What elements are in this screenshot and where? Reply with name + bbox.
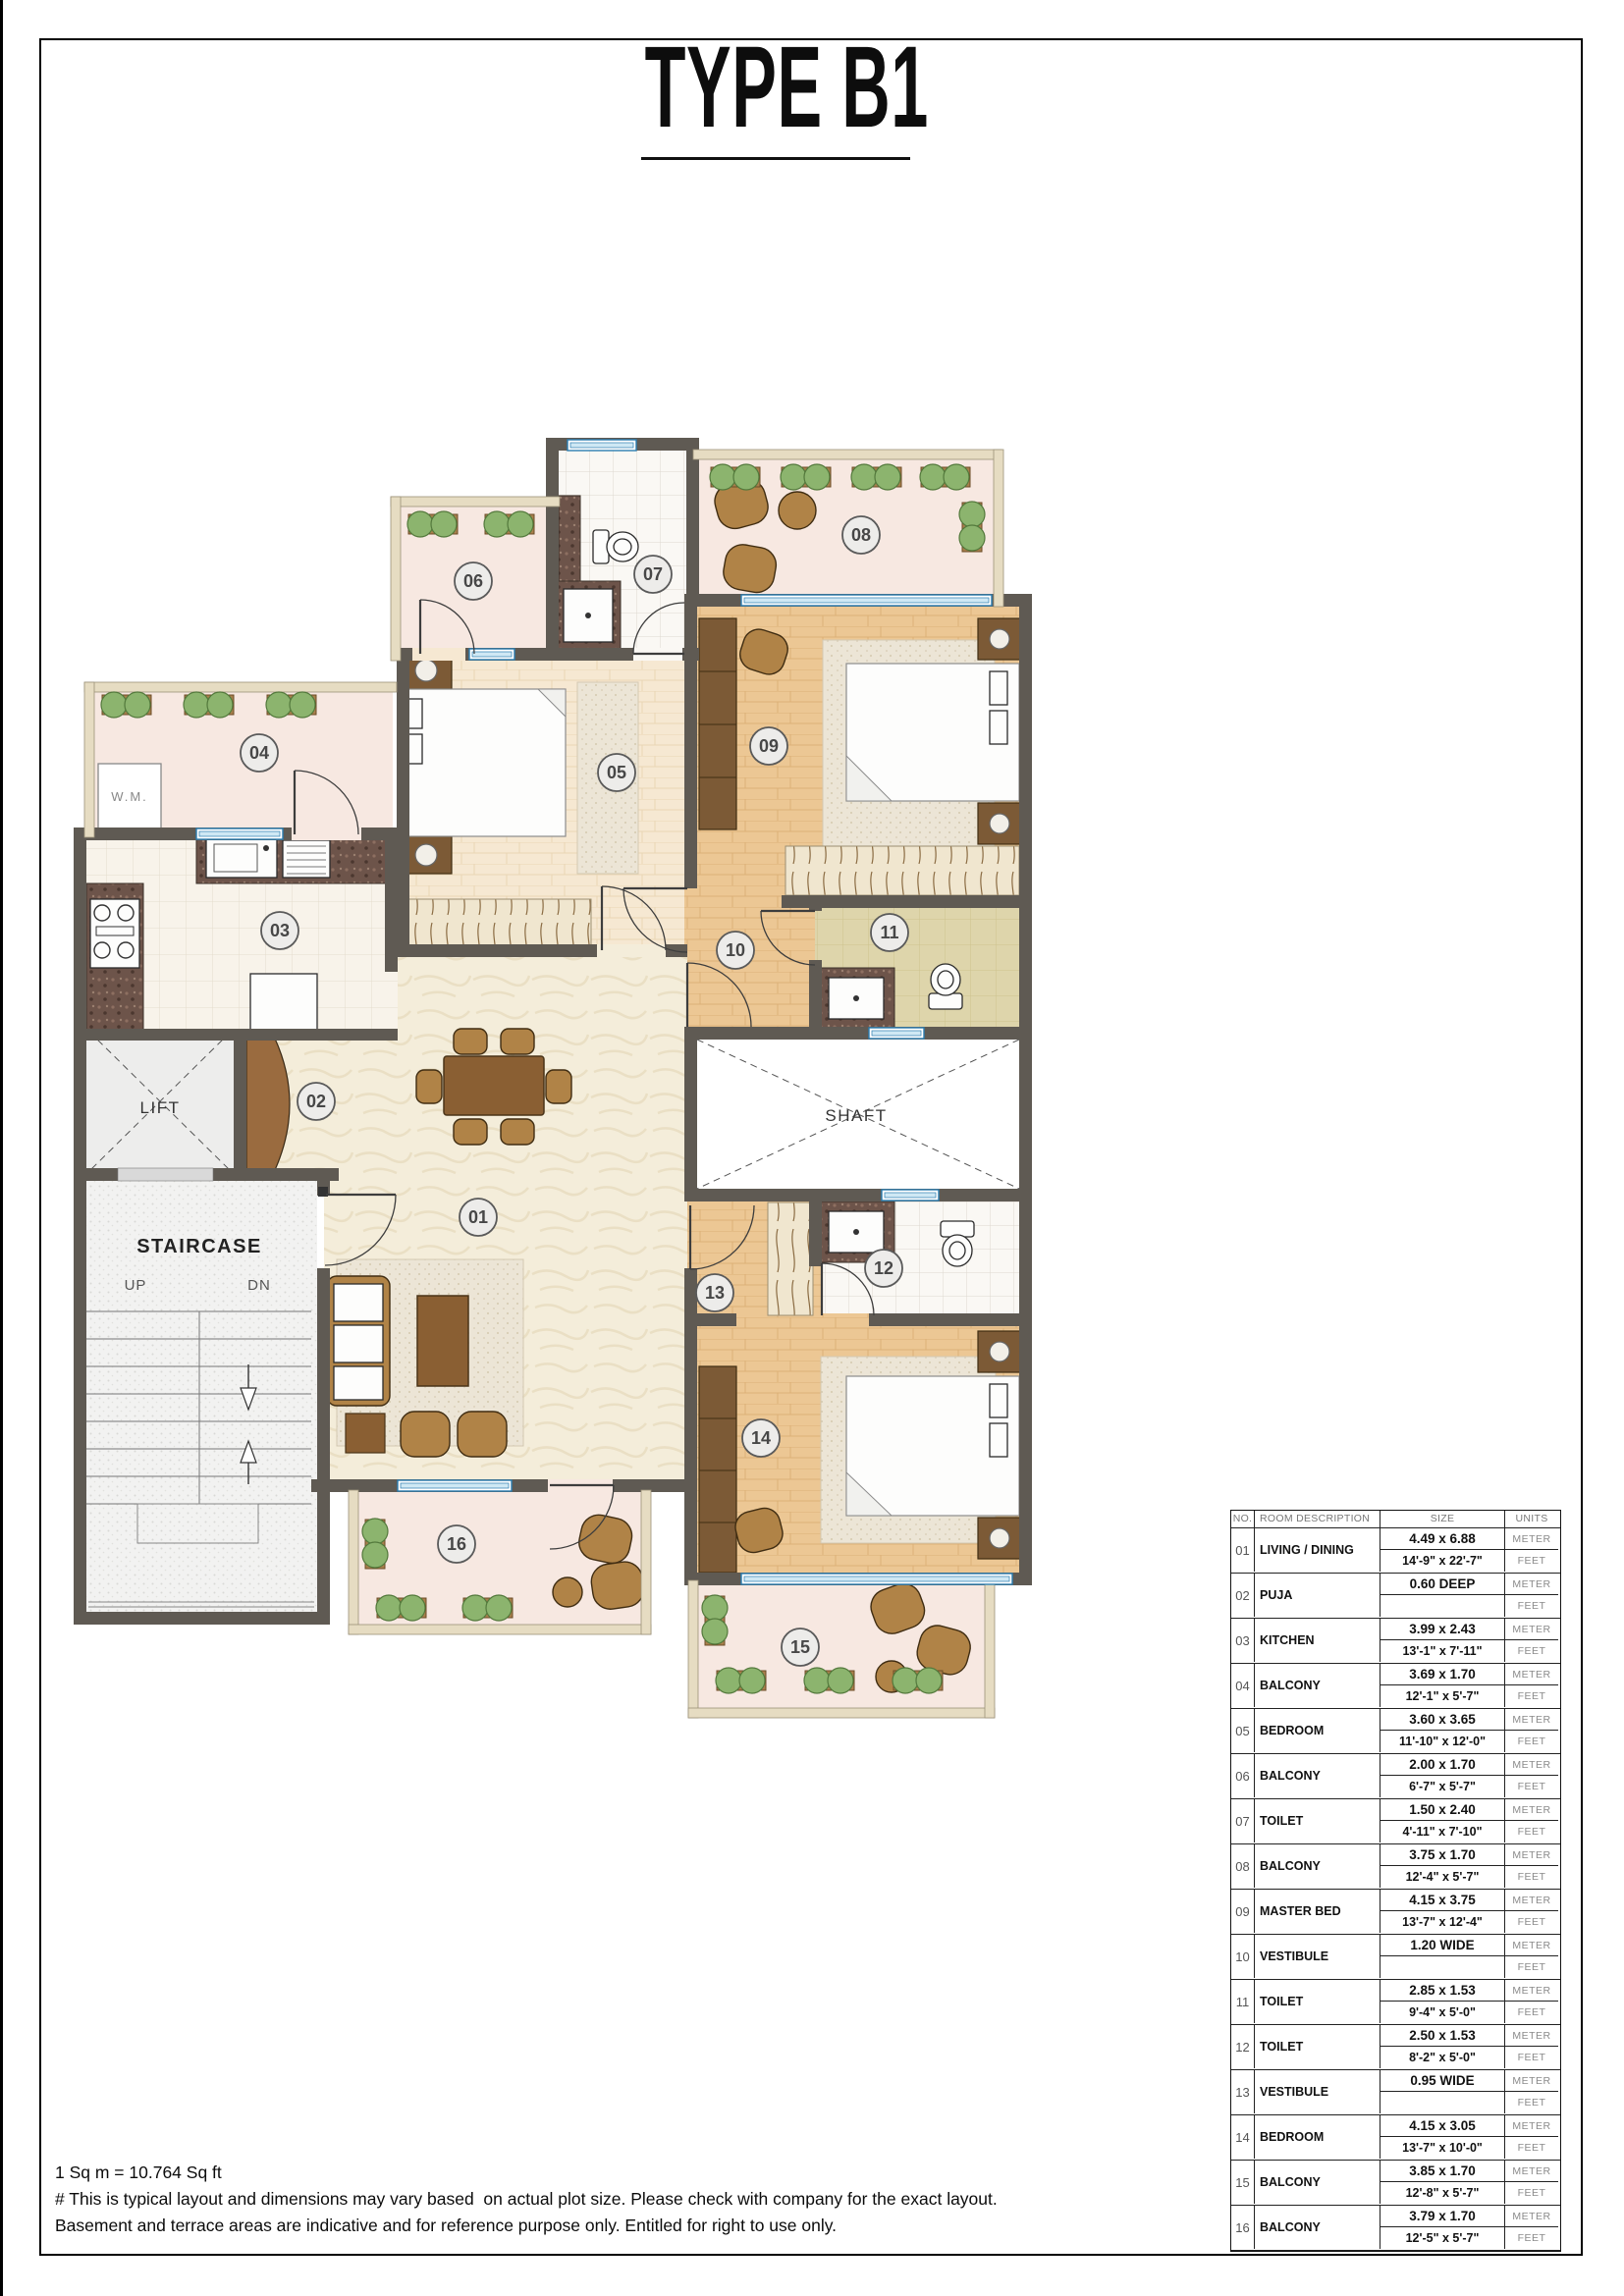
row-size-feet	[1380, 1956, 1505, 1978]
row-size-feet: 13'-1" x 7'-11"	[1380, 1640, 1505, 1662]
bedroom-05-bed	[401, 689, 566, 836]
row-number: 10	[1231, 1935, 1255, 1978]
room-number-13: 13	[696, 1274, 733, 1311]
up-label: UP	[125, 1277, 147, 1294]
row-room-name: BEDROOM	[1255, 1709, 1380, 1752]
window	[882, 1190, 939, 1201]
row-room-name: BALCONY	[1255, 1844, 1380, 1888]
table-row: 08 BALCONY 3.75 x 1.70 METER 12'-4" x 5'…	[1231, 1844, 1560, 1890]
row-unit-feet: FEET	[1505, 2002, 1558, 2023]
row-number: 13	[1231, 2070, 1255, 2113]
row-room-name: LIVING / DINING	[1255, 1528, 1380, 1572]
svg-text:13: 13	[705, 1283, 725, 1303]
row-unit-meter: METER	[1505, 1709, 1558, 1731]
pillow	[990, 711, 1007, 744]
armchair	[401, 1412, 450, 1457]
row-room-name: KITCHEN	[1255, 1619, 1380, 1662]
room-size-table: NO. ROOM DESCRIPTION SIZE UNITS 01 LIVIN…	[1230, 1510, 1561, 2252]
table-row: 06 BALCONY 2.00 x 1.70 METER 6'-7" x 5'-…	[1231, 1754, 1560, 1799]
row-number: 01	[1231, 1528, 1255, 1572]
disclaimer-line-2: Basement and terrace areas are indicativ…	[55, 2213, 1430, 2239]
dining-chair	[546, 1070, 571, 1103]
svg-text:06: 06	[463, 571, 483, 591]
table-row: 07 TOILET 1.50 x 2.40 METER 4'-11" x 7'-…	[1231, 1799, 1560, 1844]
dining-chair	[454, 1119, 487, 1145]
row-unit-feet: FEET	[1505, 1731, 1558, 1752]
window	[869, 1028, 924, 1039]
row-size-meter: 2.85 x 1.53	[1380, 1980, 1505, 2002]
row-unit-meter: METER	[1505, 1664, 1558, 1685]
balcony-08-table	[779, 492, 816, 529]
row-size-meter: 3.75 x 1.70	[1380, 1844, 1505, 1866]
pillow	[990, 671, 1007, 705]
row-room-name: BALCONY	[1255, 1664, 1380, 1707]
row-unit-meter: METER	[1505, 1890, 1558, 1911]
toilet-07-vanity	[559, 496, 580, 582]
room-number-11: 11	[871, 914, 908, 951]
room-number-12: 12	[865, 1250, 902, 1287]
room-number-04: 04	[241, 734, 278, 772]
shaft-label: SHAFT	[825, 1106, 887, 1125]
header-room-description: ROOM DESCRIPTION	[1255, 1511, 1380, 1527]
svg-text:15: 15	[790, 1637, 810, 1657]
toilet-11-wc	[929, 964, 962, 1009]
row-unit-meter: METER	[1505, 1844, 1558, 1866]
sofa-cushion	[334, 1325, 383, 1362]
bedroom-14-wardrobe	[699, 1366, 736, 1573]
table-row: 01 LIVING / DINING 4.49 x 6.88 METER 14'…	[1231, 1528, 1560, 1574]
row-size-meter: 1.50 x 2.40	[1380, 1799, 1505, 1821]
pillow	[990, 1423, 1007, 1457]
row-unit-meter: METER	[1505, 1799, 1558, 1821]
row-size-meter: 4.15 x 3.75	[1380, 1890, 1505, 1911]
lamp	[415, 844, 437, 866]
table-row: 12 TOILET 2.50 x 1.53 METER 8'-2" x 5'-0…	[1231, 2025, 1560, 2070]
table-row: 09 MASTER BED 4.15 x 3.75 METER 13'-7" x…	[1231, 1890, 1560, 1935]
row-size-meter: 0.60 DEEP	[1380, 1574, 1505, 1595]
row-number: 04	[1231, 1664, 1255, 1707]
svg-text:03: 03	[270, 921, 290, 940]
row-size-meter: 3.69 x 1.70	[1380, 1664, 1505, 1685]
wm-label: W.M.	[111, 789, 148, 804]
svg-text:10: 10	[726, 940, 745, 960]
row-size-feet: 12'-4" x 5'-7"	[1380, 1866, 1505, 1888]
row-room-name: TOILET	[1255, 2025, 1380, 2068]
floorplan-page: TYPE B1	[0, 0, 1624, 2296]
side-table	[346, 1414, 385, 1453]
faucet	[263, 845, 269, 851]
coffee-table	[417, 1296, 468, 1386]
dining-chair	[454, 1029, 487, 1054]
bedroom-05-wardrobe	[403, 899, 591, 946]
dining-table	[444, 1056, 544, 1115]
dining-chair	[501, 1119, 534, 1145]
row-size-feet: 6'-7" x 5'-7"	[1380, 1776, 1505, 1797]
row-unit-feet: FEET	[1505, 2092, 1558, 2113]
vestibule-13-closet	[768, 1202, 813, 1315]
row-size-meter: 4.15 x 3.05	[1380, 2115, 1505, 2137]
room-number-16: 16	[438, 1525, 475, 1563]
balcony-16-chair	[589, 1560, 646, 1612]
disclaimer-line-1: # This is typical layout and dimensions …	[55, 2186, 1430, 2213]
row-room-name: BALCONY	[1255, 1754, 1380, 1797]
lift-label: LIFT	[140, 1098, 181, 1117]
row-room-name: BEDROOM	[1255, 2115, 1380, 2159]
window	[741, 1574, 1012, 1584]
window	[196, 828, 283, 839]
faucet	[585, 613, 591, 618]
dn-label: DN	[247, 1277, 271, 1294]
table-row: 14 BEDROOM 4.15 x 3.05 METER 13'-7" x 10…	[1231, 2115, 1560, 2161]
row-room-name: TOILET	[1255, 1980, 1380, 2023]
row-size-feet	[1380, 2092, 1505, 2113]
dining-chair	[416, 1070, 442, 1103]
svg-text:07: 07	[643, 564, 663, 584]
table-row: 05 BEDROOM 3.60 x 3.65 METER 11'-10" x 1…	[1231, 1709, 1560, 1754]
row-room-name: VESTIBULE	[1255, 2070, 1380, 2113]
lamp	[990, 814, 1009, 833]
row-unit-meter: METER	[1505, 1574, 1558, 1595]
lamp	[415, 660, 437, 681]
row-size-meter: 3.60 x 3.65	[1380, 1709, 1505, 1731]
table-row: 10 VESTIBULE 1.20 WIDE METER FEET	[1231, 1935, 1560, 1980]
room-number-05: 05	[598, 754, 635, 791]
room-number-10: 10	[717, 932, 754, 969]
window	[741, 595, 992, 606]
window	[469, 649, 514, 660]
row-size-feet: 11'-10" x 12'-0"	[1380, 1731, 1505, 1752]
balcony-16-table	[553, 1577, 582, 1607]
row-unit-meter: METER	[1505, 2161, 1558, 2182]
room-number-15: 15	[782, 1629, 819, 1666]
toilet-07-wc	[593, 530, 638, 563]
svg-text:12: 12	[874, 1258, 893, 1278]
table-header: NO. ROOM DESCRIPTION SIZE UNITS	[1231, 1511, 1560, 1528]
row-unit-meter: METER	[1505, 2206, 1558, 2227]
footer-notes: 1 Sq m = 10.764 Sq ft # This is typical …	[55, 2160, 1430, 2239]
row-number: 12	[1231, 2025, 1255, 2068]
lamp	[990, 1342, 1009, 1362]
svg-text:11: 11	[880, 923, 898, 942]
header-no: NO.	[1231, 1511, 1255, 1527]
row-number: 14	[1231, 2115, 1255, 2159]
svg-text:09: 09	[759, 736, 779, 756]
row-unit-meter: METER	[1505, 2025, 1558, 2047]
row-size-meter: 1.20 WIDE	[1380, 1935, 1505, 1956]
bedroom-09-wardrobe	[785, 846, 1019, 895]
kitchen-fridge	[250, 974, 317, 1031]
row-number: 11	[1231, 1980, 1255, 2023]
row-number: 09	[1231, 1890, 1255, 1933]
row-unit-feet: FEET	[1505, 2137, 1558, 2159]
dining-chair	[501, 1029, 534, 1054]
row-unit-feet: FEET	[1505, 1685, 1558, 1707]
table-row: 13 VESTIBULE 0.95 WIDE METER FEET	[1231, 2070, 1560, 2115]
row-size-feet	[1380, 1595, 1505, 1617]
table-body: 01 LIVING / DINING 4.49 x 6.88 METER 14'…	[1231, 1528, 1560, 2251]
svg-text:02: 02	[306, 1092, 326, 1111]
row-size-feet: 13'-7" x 10'-0"	[1380, 2137, 1505, 2159]
row-unit-feet: FEET	[1505, 2182, 1558, 2204]
svg-text:01: 01	[468, 1207, 488, 1227]
row-room-name: TOILET	[1255, 1799, 1380, 1842]
row-size-feet: 14'-9" x 22'-7"	[1380, 1550, 1505, 1572]
room-number-02: 02	[298, 1083, 335, 1120]
row-size-meter: 0.95 WIDE	[1380, 2070, 1505, 2092]
row-size-meter: 3.99 x 2.43	[1380, 1619, 1505, 1640]
svg-text:14: 14	[751, 1428, 771, 1448]
row-size-meter: 4.49 x 6.88	[1380, 1528, 1505, 1550]
row-unit-feet: FEET	[1505, 2047, 1558, 2068]
row-unit-feet: FEET	[1505, 1595, 1558, 1617]
window	[398, 1480, 512, 1491]
room-number-01: 01	[460, 1199, 497, 1236]
pillow	[990, 1384, 1007, 1417]
row-room-name: MASTER BED	[1255, 1890, 1380, 1933]
header-units: UNITS	[1505, 1511, 1558, 1527]
row-unit-meter: METER	[1505, 2070, 1558, 2092]
header-size: SIZE	[1380, 1511, 1505, 1527]
window	[568, 440, 636, 451]
row-room-name: VESTIBULE	[1255, 1935, 1380, 1978]
row-number: 06	[1231, 1754, 1255, 1797]
row-unit-feet: FEET	[1505, 1866, 1558, 1888]
table-row: 02 PUJA 0.60 DEEP METER FEET	[1231, 1574, 1560, 1619]
row-unit-feet: FEET	[1505, 2227, 1558, 2249]
armchair	[458, 1412, 507, 1457]
staircase-label: STAIRCASE	[136, 1236, 262, 1257]
svg-text:05: 05	[607, 763, 626, 782]
row-unit-feet: FEET	[1505, 1911, 1558, 1933]
row-room-name: PUJA	[1255, 1574, 1380, 1617]
row-size-meter: 2.50 x 1.53	[1380, 2025, 1505, 2047]
lamp	[990, 1528, 1009, 1548]
row-unit-meter: METER	[1505, 1528, 1558, 1550]
row-number: 07	[1231, 1799, 1255, 1842]
row-unit-meter: METER	[1505, 1619, 1558, 1640]
svg-text:16: 16	[447, 1534, 466, 1554]
room-number-06: 06	[455, 562, 492, 600]
row-size-feet: 9'-4" x 5'-0"	[1380, 2002, 1505, 2023]
toilet-12-wc	[941, 1221, 974, 1266]
row-size-feet: 13'-7" x 12'-4"	[1380, 1911, 1505, 1933]
row-number: 02	[1231, 1574, 1255, 1617]
sofa-cushion	[334, 1284, 383, 1321]
table-row: 11 TOILET 2.85 x 1.53 METER 9'-4" x 5'-0…	[1231, 1980, 1560, 2025]
row-size-feet: 4'-11" x 7'-10"	[1380, 1821, 1505, 1842]
row-unit-feet: FEET	[1505, 1821, 1558, 1842]
table-row: 03 KITCHEN 3.99 x 2.43 METER 13'-1" x 7'…	[1231, 1619, 1560, 1664]
room-number-09: 09	[750, 727, 787, 765]
row-number: 03	[1231, 1619, 1255, 1662]
room-number-07: 07	[634, 556, 672, 593]
row-unit-meter: METER	[1505, 1935, 1558, 1956]
row-unit-feet: FEET	[1505, 1550, 1558, 1572]
room-number-08: 08	[842, 516, 880, 554]
svg-text:08: 08	[851, 525, 871, 545]
row-unit-feet: FEET	[1505, 1956, 1558, 1978]
room-number-14: 14	[742, 1419, 780, 1457]
row-unit-meter: METER	[1505, 2115, 1558, 2137]
sofa-cushion	[334, 1366, 383, 1400]
toilet-11-sink	[818, 968, 894, 1029]
row-number: 08	[1231, 1844, 1255, 1888]
row-size-meter: 2.00 x 1.70	[1380, 1754, 1505, 1776]
lamp	[990, 629, 1009, 649]
row-unit-feet: FEET	[1505, 1776, 1558, 1797]
room-number-03: 03	[261, 912, 298, 949]
row-unit-feet: FEET	[1505, 1640, 1558, 1662]
table-row: 04 BALCONY 3.69 x 1.70 METER 12'-1" x 5'…	[1231, 1664, 1560, 1709]
svg-text:04: 04	[249, 743, 269, 763]
row-size-feet: 12'-1" x 5'-7"	[1380, 1685, 1505, 1707]
conversion-note: 1 Sq m = 10.764 Sq ft	[55, 2160, 1430, 2186]
row-unit-meter: METER	[1505, 1754, 1558, 1776]
row-unit-meter: METER	[1505, 1980, 1558, 2002]
row-number: 05	[1231, 1709, 1255, 1752]
row-size-feet: 8'-2" x 5'-0"	[1380, 2047, 1505, 2068]
